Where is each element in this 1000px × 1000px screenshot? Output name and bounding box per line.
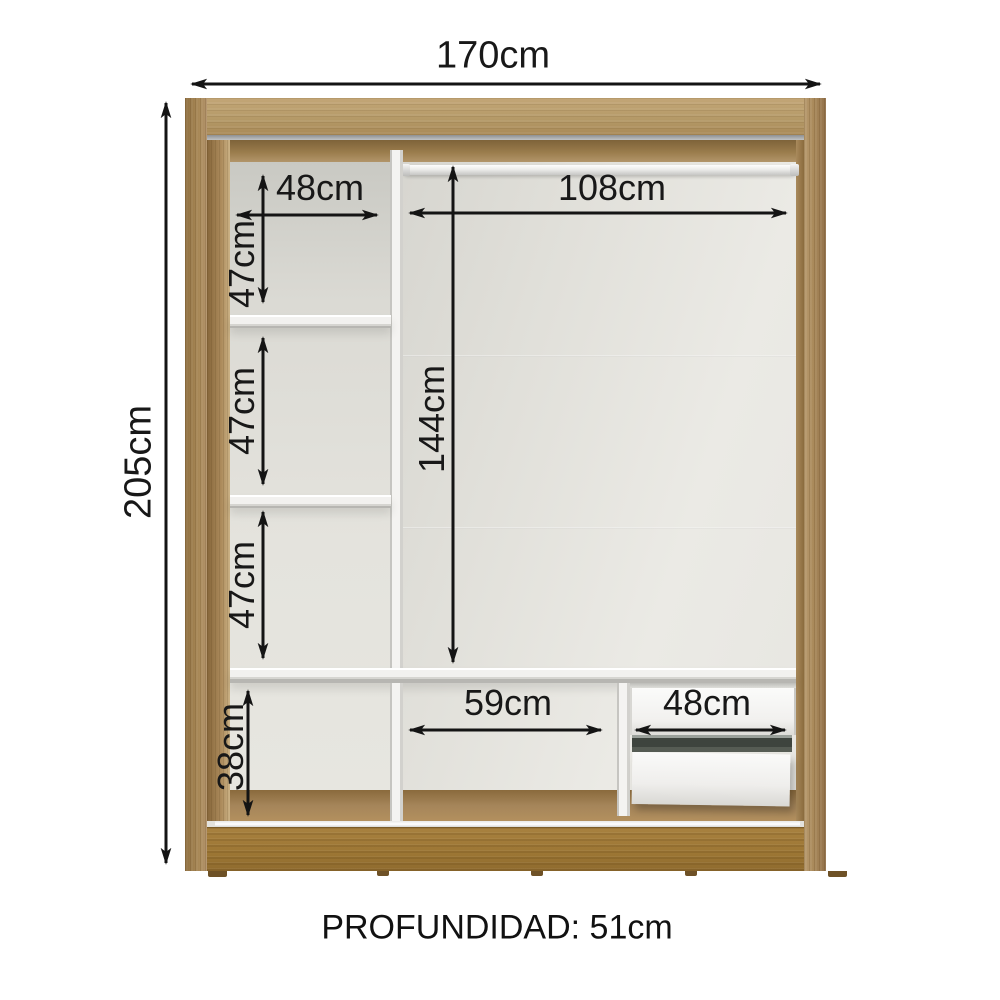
back-panel-seam (390, 355, 796, 357)
frame-left-face (185, 98, 207, 871)
dim-label-rod-width: 108cm (558, 167, 666, 209)
shelf (230, 315, 391, 328)
wardrobe-dimension-diagram: 170cm 205cm 48cm 47cm 47cm 47cm 108cm 14… (0, 0, 1000, 1000)
foot (208, 871, 227, 877)
dim-label-total-height: 205cm (118, 405, 161, 519)
dim-label-total-width: 170cm (436, 35, 550, 78)
vertical-divider (390, 150, 403, 670)
wardrobe-interior (207, 135, 804, 828)
dim-label-main-height: 144cm (411, 365, 453, 473)
dim-label-bottom-height: 38cm (210, 703, 252, 791)
foot (685, 871, 697, 876)
depth-label: PROFUNDIDAD: 51cm (321, 909, 672, 948)
frame-top-face (185, 98, 826, 135)
foot (828, 871, 847, 877)
drawer-open-slot (632, 735, 792, 752)
dim-label-drawer-width: 48cm (663, 682, 751, 724)
bottom-divider-right (617, 683, 630, 816)
interior-ceiling (207, 140, 804, 162)
back-panel-seam (390, 527, 796, 529)
wardrobe-base (207, 827, 804, 871)
frame-right-face (804, 98, 826, 871)
dim-label-compartment3-height: 47cm (221, 541, 263, 629)
full-width-shelf (230, 668, 796, 683)
foot (531, 871, 543, 876)
dim-label-compartment2-height: 47cm (221, 367, 263, 455)
bottom-divider-left (390, 683, 403, 821)
dim-label-middle-width: 59cm (464, 682, 552, 724)
drawer-open-front (632, 752, 791, 806)
shelf (230, 495, 391, 508)
wardrobe-frame (185, 98, 826, 871)
dim-label-left-column-width: 48cm (276, 167, 364, 209)
interior-right-wall (796, 140, 804, 821)
dim-label-compartment1-height: 47cm (221, 220, 263, 308)
foot (377, 871, 389, 876)
